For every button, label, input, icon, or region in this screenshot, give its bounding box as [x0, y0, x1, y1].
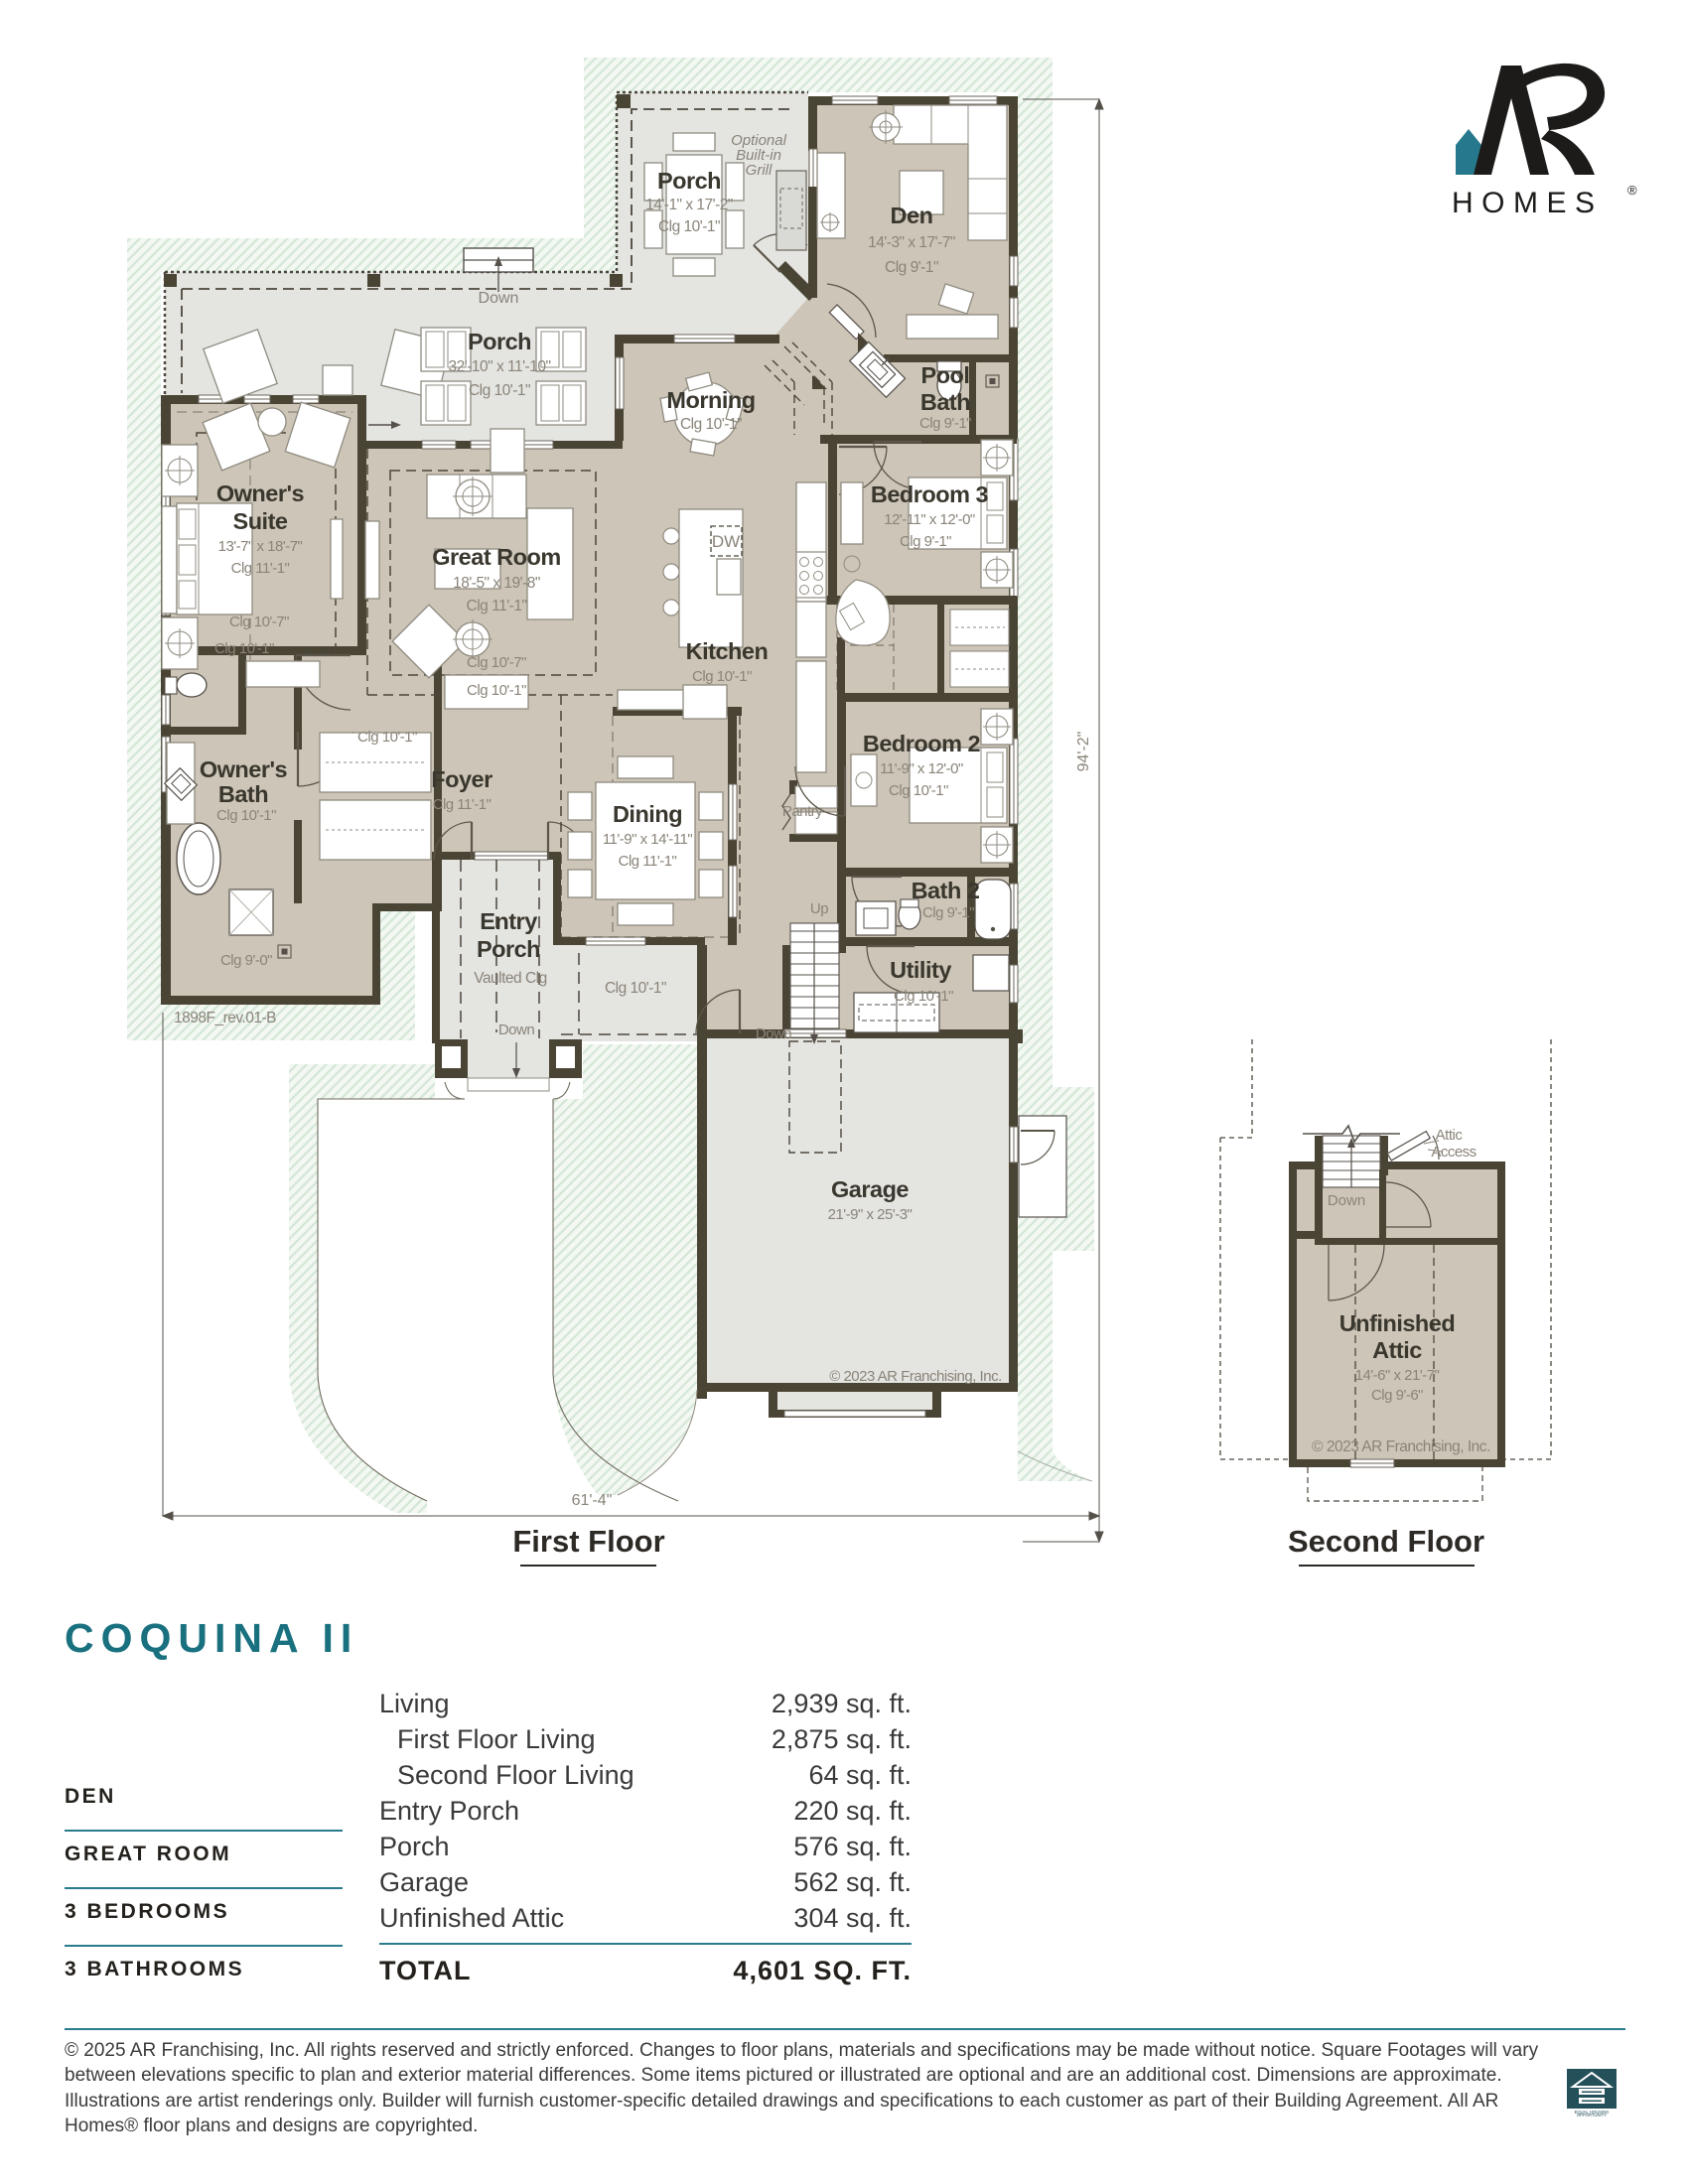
- svg-text:Clg 10'-1": Clg 10'-1": [357, 729, 417, 746]
- svg-text:Clg 9'-0": Clg 9'-0": [220, 952, 272, 969]
- svg-text:Kitchen: Kitchen: [686, 638, 769, 664]
- svg-text:12'-11" x 12'-0": 12'-11" x 12'-0": [884, 511, 975, 528]
- svg-text:Down: Down: [479, 290, 519, 307]
- svg-text:Bath 2: Bath 2: [912, 878, 980, 903]
- svg-text:Bath: Bath: [920, 389, 970, 415]
- svg-text:Clg 10'-1": Clg 10'-1": [214, 640, 274, 657]
- svg-text:Foyer: Foyer: [431, 766, 492, 792]
- svg-text:32'-10" x 11'-10": 32'-10" x 11'-10": [449, 358, 551, 375]
- svg-text:Second Floor: Second Floor: [1288, 1524, 1484, 1559]
- svg-text:Bedroom 3: Bedroom 3: [871, 481, 989, 507]
- svg-text:Clg 9'-1": Clg 9'-1": [922, 904, 974, 921]
- svg-text:Suite: Suite: [233, 508, 288, 534]
- svg-text:11'-9" x 12'-0": 11'-9" x 12'-0": [880, 760, 963, 777]
- svg-text:Clg 11'-1": Clg 11'-1": [467, 598, 527, 614]
- svg-text:Owner's: Owner's: [200, 756, 288, 782]
- svg-text:DW: DW: [712, 532, 740, 551]
- svg-text:Dining: Dining: [613, 801, 682, 827]
- svg-text:Porch: Porch: [477, 936, 540, 962]
- svg-text:94'-2": 94'-2": [1075, 732, 1092, 772]
- svg-text:Clg 10'-1": Clg 10'-1": [658, 218, 720, 235]
- svg-text:Clg 9'-6": Clg 9'-6": [1371, 1387, 1423, 1404]
- svg-text:1898F_rev.01-B: 1898F_rev.01-B: [174, 1010, 276, 1026]
- svg-text:© 2023 AR Franchising, Inc.: © 2023 AR Franchising, Inc.: [829, 1368, 1001, 1385]
- svg-text:OPPORTUNITY: OPPORTUNITY: [1577, 2113, 1607, 2116]
- svg-text:Porch: Porch: [657, 168, 721, 194]
- svg-text:Up: Up: [810, 900, 828, 917]
- svg-text:Down: Down: [1328, 1192, 1365, 1209]
- svg-text:21'-9" x 25'-3": 21'-9" x 25'-3": [828, 1206, 913, 1223]
- svg-text:13'-7" x 18'-7": 13'-7" x 18'-7": [218, 538, 303, 555]
- svg-text:Clg 10'-1": Clg 10'-1": [894, 988, 953, 1005]
- svg-text:First Floor: First Floor: [512, 1524, 664, 1559]
- svg-text:Morning: Morning: [666, 387, 755, 413]
- svg-text:Access: Access: [1431, 1144, 1476, 1160]
- svg-text:Clg 9'-1": Clg 9'-1": [885, 259, 938, 276]
- svg-text:Pool: Pool: [921, 362, 970, 388]
- svg-text:®: ®: [1627, 183, 1637, 198]
- svg-text:Porch: Porch: [468, 329, 531, 354]
- svg-text:Grill: Grill: [746, 162, 773, 179]
- svg-text:Great Room: Great Room: [432, 544, 561, 570]
- svg-text:Vaulted Clg: Vaulted Clg: [474, 970, 546, 987]
- svg-text:Entry: Entry: [480, 908, 537, 934]
- svg-text:Clg 9'-1": Clg 9'-1": [900, 533, 951, 550]
- svg-text:Clg 10'-7": Clg 10'-7": [229, 614, 289, 630]
- svg-text:Clg 11'-1": Clg 11'-1": [619, 853, 677, 870]
- svg-text:Clg 11'-1": Clg 11'-1": [433, 796, 492, 813]
- svg-text:Clg 11'-1": Clg 11'-1": [231, 560, 290, 577]
- svg-text:Den: Den: [891, 203, 933, 228]
- svg-text:HOMES: HOMES: [1452, 187, 1604, 219]
- svg-text:Pantry: Pantry: [782, 803, 823, 820]
- svg-text:Clg 10'-1": Clg 10'-1": [467, 682, 526, 699]
- svg-text:Down: Down: [498, 1022, 535, 1038]
- svg-text:14'-1" x 17'-2": 14'-1" x 17'-2": [645, 197, 733, 213]
- svg-text:Clg 10'-1": Clg 10'-1": [680, 416, 742, 433]
- svg-text:Down: Down: [756, 1025, 792, 1042]
- svg-text:Unfinished: Unfinished: [1339, 1310, 1455, 1336]
- svg-text:14'-3" x 17'-7": 14'-3" x 17'-7": [868, 234, 955, 251]
- svg-text:Bedroom 2: Bedroom 2: [863, 731, 981, 756]
- svg-text:Clg 10'-1": Clg 10'-1": [216, 807, 276, 824]
- svg-text:Clg 10'-1": Clg 10'-1": [889, 782, 948, 799]
- svg-text:Garage: Garage: [831, 1176, 909, 1202]
- svg-text:Clg 10'-1": Clg 10'-1": [692, 668, 752, 685]
- svg-text:Clg 10'-1": Clg 10'-1": [605, 980, 666, 997]
- svg-text:Clg 10'-1": Clg 10'-1": [469, 382, 530, 399]
- svg-text:Attic: Attic: [1372, 1337, 1422, 1363]
- svg-text:11'-9" x 14'-11": 11'-9" x 14'-11": [603, 831, 693, 848]
- svg-text:61'-4": 61'-4": [572, 1492, 613, 1509]
- svg-text:14'-6" x 21'-7": 14'-6" x 21'-7": [1355, 1367, 1440, 1384]
- svg-text:© 2023 AR Franchising, Inc.: © 2023 AR Franchising, Inc.: [1312, 1438, 1490, 1455]
- svg-text:Attic: Attic: [1436, 1127, 1464, 1144]
- svg-text:Utility: Utility: [890, 957, 951, 983]
- svg-text:Clg 9'-1": Clg 9'-1": [919, 415, 971, 432]
- svg-text:Clg 10'-7": Clg 10'-7": [467, 654, 526, 671]
- svg-text:18'-5" x 19'-8": 18'-5" x 19'-8": [453, 575, 540, 592]
- svg-text:Owner's: Owner's: [216, 480, 305, 506]
- svg-text:Bath: Bath: [218, 781, 268, 807]
